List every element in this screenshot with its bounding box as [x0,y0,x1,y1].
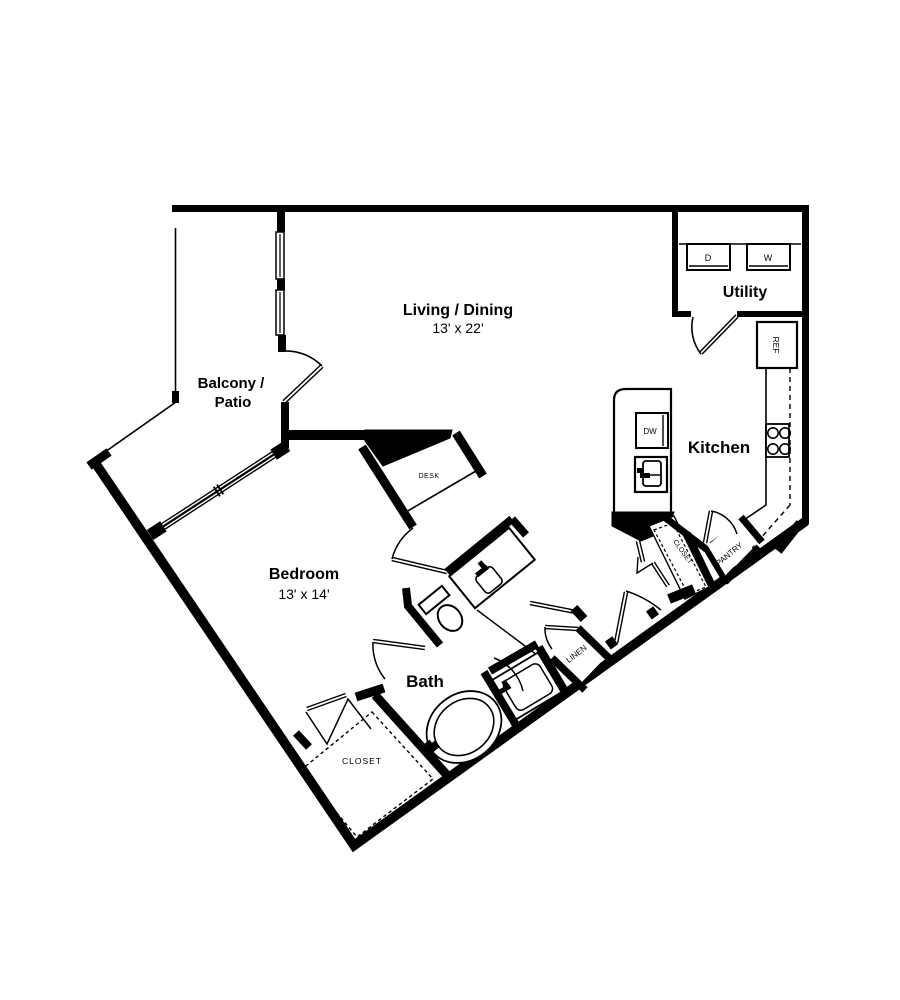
svg-text:Patio: Patio [215,394,252,411]
svg-text:D: D [705,253,712,263]
svg-text:W: W [764,253,773,263]
svg-text:DESK: DESK [418,473,439,480]
svg-text:Bath: Bath [406,672,444,691]
svg-text:13' x 22': 13' x 22' [432,320,483,336]
svg-text:CLOSET: CLOSET [342,756,382,766]
svg-text:Bedroom: Bedroom [269,566,339,583]
svg-text:DW: DW [643,427,657,436]
svg-text:Utility: Utility [723,284,768,301]
svg-text:REF: REF [771,337,781,354]
svg-text:Kitchen: Kitchen [688,438,750,457]
svg-text:13' x 14': 13' x 14' [278,586,329,602]
svg-text:Living / Dining: Living / Dining [403,302,513,319]
svg-text:Balcony /: Balcony / [198,375,266,392]
